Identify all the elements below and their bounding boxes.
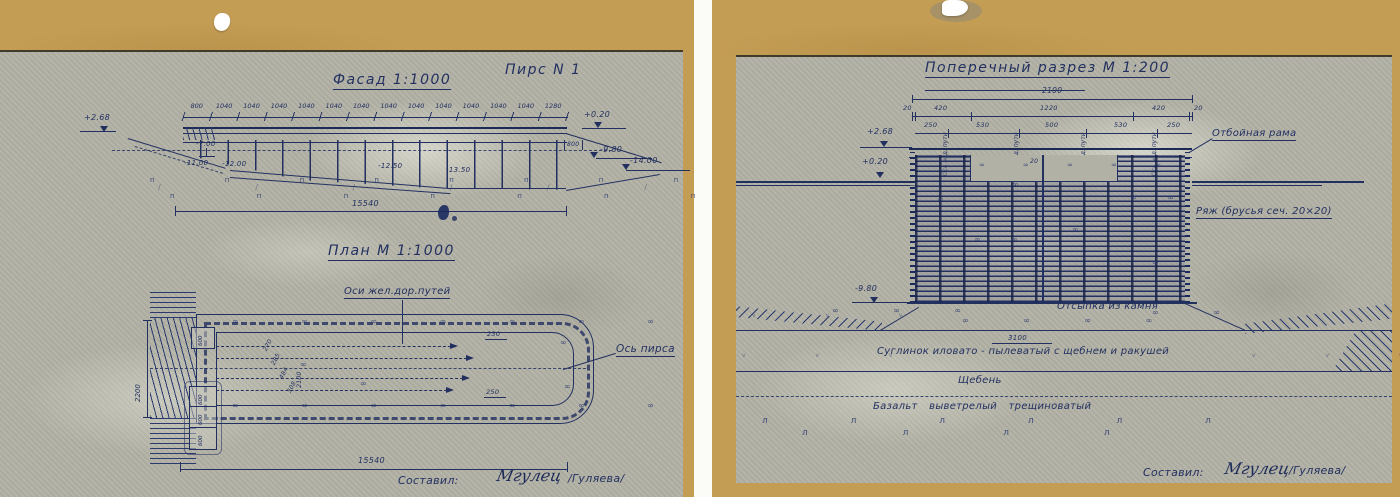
plan-title: План М 1:1000 — [328, 243, 455, 261]
dim-value: 530 — [1114, 121, 1127, 129]
shore-hatch — [150, 290, 196, 318]
dim-value: 600 — [198, 330, 204, 346]
dim-value: 1040 — [320, 102, 347, 110]
punch-hole — [213, 12, 231, 32]
stone-symbols — [1012, 180, 1045, 189]
credit-countersign: /Гуляева/ — [1289, 464, 1345, 477]
stone-symbols — [564, 382, 597, 391]
elevation-line — [80, 131, 116, 132]
dim-value: 1040 — [375, 102, 402, 110]
dim-value: 500 — [1045, 121, 1058, 129]
elevation-label: +0.20 — [584, 110, 610, 119]
pier-axis-label: Ось пирса — [616, 343, 675, 357]
stone-symbols — [560, 338, 593, 347]
crib-label: Ряж (брусья сеч. 20×20) — [1196, 206, 1332, 219]
dim-value: 600 — [198, 388, 204, 405]
abutment-hatch — [183, 127, 217, 140]
elevation-label: +2.68 — [867, 127, 893, 136]
dim-value: 1040 — [348, 102, 375, 110]
dim-value: 600 — [198, 429, 204, 446]
fender-frame-right — [1185, 152, 1190, 303]
dim-tick — [915, 112, 916, 121]
dim-value: 1280 — [539, 102, 566, 110]
dim-tick — [912, 112, 913, 121]
dim-value: 250 — [924, 121, 937, 129]
dim-value: 1040 — [457, 102, 484, 110]
soil-tick-symbols — [752, 312, 936, 319]
overall-dim-value: 15540 — [352, 199, 379, 208]
notch-dim-value: 20 — [1030, 158, 1038, 165]
overall-dim-line — [912, 99, 1192, 100]
page-right: Поперечный разрез М 1:200 2100 20 420 12… — [712, 0, 1400, 497]
elevation-flag — [876, 172, 884, 178]
crib-notch — [970, 155, 1118, 182]
dim-value: 1040 — [293, 102, 320, 110]
dim-tick — [143, 417, 152, 418]
loam-dim-line — [992, 343, 1052, 344]
credit-signature: Мгулец — [495, 466, 564, 485]
facade-overall-dim-line — [175, 211, 567, 212]
dim-value: 1040 — [430, 102, 457, 110]
fender-label: Отбойная рама — [1212, 128, 1296, 141]
shore-dim-value: 2200 — [134, 358, 142, 402]
depth-label: -7.00 — [196, 140, 216, 148]
dim-value: 2100 — [295, 352, 303, 388]
fender-frame-left — [910, 152, 915, 303]
dim-value: 600 — [198, 408, 204, 425]
overall-dim-value: 2100 — [1042, 86, 1062, 95]
track-line — [216, 358, 472, 359]
dim-tick — [180, 462, 181, 472]
waterline-right — [1192, 181, 1364, 183]
dim-tick — [1189, 112, 1190, 121]
dim-value: 420 — [1152, 104, 1165, 112]
pier-axis-line — [150, 368, 586, 369]
loam-dim-value: 3100 — [1008, 334, 1027, 342]
overall-dim-value: 15540 — [358, 456, 385, 465]
stone-symbols — [937, 195, 970, 204]
elevation-line — [582, 128, 626, 129]
dim-tick — [1133, 112, 1134, 121]
step-line — [199, 156, 215, 157]
ink-blot — [452, 216, 457, 221]
elevation-label: +0.20 — [862, 157, 888, 166]
depth-label: -12.00 — [222, 160, 246, 168]
stone-symbols — [300, 360, 333, 369]
elevation-label: -14.00 — [630, 156, 658, 165]
dim-tick — [912, 95, 913, 103]
depth-label: -12.50 — [378, 162, 402, 170]
crib-center-divider — [1042, 155, 1044, 302]
depth-label: -13.50 — [446, 166, 470, 174]
dim-tick — [143, 320, 152, 321]
waterline-left — [736, 181, 915, 183]
layer-boundary — [736, 330, 1392, 331]
dim-value: 420 — [934, 104, 947, 112]
dim-tick — [484, 397, 506, 398]
stone-symbols — [1130, 193, 1188, 202]
shore-dim-line — [147, 320, 148, 418]
dim-value: 1040 — [265, 102, 292, 110]
stone-symbols — [979, 161, 1179, 169]
page-left: Фасад 1:1000 Пирс N 1 800 1040 1040 1040… — [0, 0, 694, 497]
dim-tick — [567, 462, 568, 472]
small-dim-tick — [564, 140, 565, 150]
waterline-left-2 — [736, 185, 915, 186]
pier-number-label: Пирс N 1 — [505, 62, 582, 78]
elevation-line — [852, 302, 912, 303]
dim-value: 1040 — [402, 102, 429, 110]
waterline-right-2 — [1192, 185, 1322, 186]
stone-fill-label: Отсыпка из камня — [1057, 301, 1158, 312]
facade-dimension-row: 800 1040 1040 1040 1040 1040 1040 1040 1… — [183, 102, 567, 110]
dim-tick — [1192, 112, 1193, 121]
water-level-dashed — [112, 150, 612, 151]
dim-value: 530 — [976, 121, 989, 129]
section-title: Поперечный разрез М 1:200 — [925, 60, 1170, 78]
dim-line-row1 — [912, 116, 1192, 117]
pier-deck-midline — [183, 133, 567, 134]
depth-label: -11.00 — [184, 159, 208, 167]
stone-symbols — [974, 235, 1032, 244]
track-line — [216, 390, 452, 391]
rail-axes-label: Оси жел.дор.путей — [344, 286, 450, 299]
mooring-block-lower: 600 600 600 — [189, 386, 217, 450]
block-divider — [190, 427, 216, 428]
credit-prefix: Составил: — [398, 474, 459, 487]
stone-symbols — [1072, 225, 1105, 234]
mooring-block-upper: 600 — [191, 327, 215, 349]
stone-symbols — [962, 316, 1178, 325]
dim-value: 250 — [486, 388, 499, 396]
dim-tick — [1192, 95, 1193, 103]
dim-value: 1040 — [238, 102, 265, 110]
soil-tick-symbols — [742, 352, 926, 359]
dim-value: 800 — [183, 102, 210, 110]
dim-value: 20 — [903, 104, 912, 112]
elevation-line — [626, 170, 690, 171]
basalt-symbols — [802, 428, 1156, 438]
dim-value: 1220 — [1040, 104, 1058, 112]
track-line — [216, 378, 468, 379]
dim-value: 250 — [1167, 121, 1180, 129]
dim-value: 1040 — [512, 102, 539, 110]
layer-boundary-dashed — [736, 396, 1392, 397]
elevation-label: +2.68 — [84, 113, 110, 122]
block-divider — [190, 406, 216, 407]
stone-symbols — [360, 379, 393, 388]
layer-boundary — [736, 371, 1392, 372]
step-line — [206, 148, 207, 156]
dim-value: 230 — [487, 330, 500, 338]
gravel-label: Щебень — [958, 375, 1002, 386]
credit-signature: Мгулец — [1223, 459, 1292, 478]
credit-prefix: Составил: — [1143, 466, 1204, 479]
dim-value: 1040 — [210, 102, 237, 110]
elevation-label: -9.80 — [855, 284, 877, 293]
credit-countersign: /Гуляева/ — [568, 472, 624, 485]
dim-value: 1040 — [485, 102, 512, 110]
track-line — [216, 346, 456, 347]
dim-value: 800 — [567, 141, 579, 148]
scanned-drawing: Фасад 1:1000 Пирс N 1 800 1040 1040 1040… — [0, 0, 1400, 497]
elevation-line — [860, 147, 912, 148]
facade-dim-ticks — [182, 112, 571, 121]
soil-tick-symbols — [1252, 352, 1400, 359]
dim-tick — [485, 339, 507, 340]
dim-tick — [971, 112, 972, 121]
elevation-label: -9.80 — [600, 145, 622, 154]
stone-symbols — [1152, 258, 1185, 267]
facade-title: Фасад 1:1000 — [333, 72, 451, 90]
dim-value: 20 — [1194, 104, 1203, 112]
basalt-symbols — [762, 416, 1251, 426]
small-dim-tick — [582, 140, 583, 150]
basalt-label: Базальт выветрелый трещиноватый — [873, 401, 1091, 412]
